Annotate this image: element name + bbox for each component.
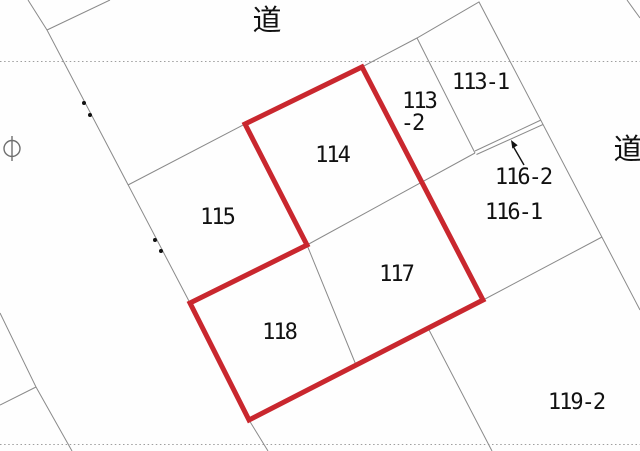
cadastral-map: 道 道 113-1 113 -2 114 115 116-2 116-1 117… [0,0,640,451]
road-label-top: 道 [252,3,281,37]
parcel-label-113-1: 113-1 [452,70,509,95]
parcel-label-115: 115 [200,205,234,230]
parcel-label-116-1: 116-1 [485,200,542,225]
map-canvas: 道 道 113-1 113 -2 114 115 116-2 116-1 117… [0,0,640,451]
utility-pole-icon [4,136,20,161]
parcel-label-113-2-line2: -2 [401,111,424,136]
highlight-outline-114-117-118 [190,67,483,420]
parcel-label-114: 114 [315,143,350,168]
sheet-dotted-lines [0,62,640,445]
parcel-label-117: 117 [379,262,413,287]
survey-point-dots [82,101,163,253]
parcel-label-119-2: 119-2 [548,390,605,415]
road-label-right: 道 [613,132,640,166]
arrowhead-icon [511,140,518,149]
arrow-to-parcel-116-2 [513,146,524,165]
parcel-label-116-2: 116-2 [495,165,552,190]
parcel-label-118: 118 [262,320,296,345]
